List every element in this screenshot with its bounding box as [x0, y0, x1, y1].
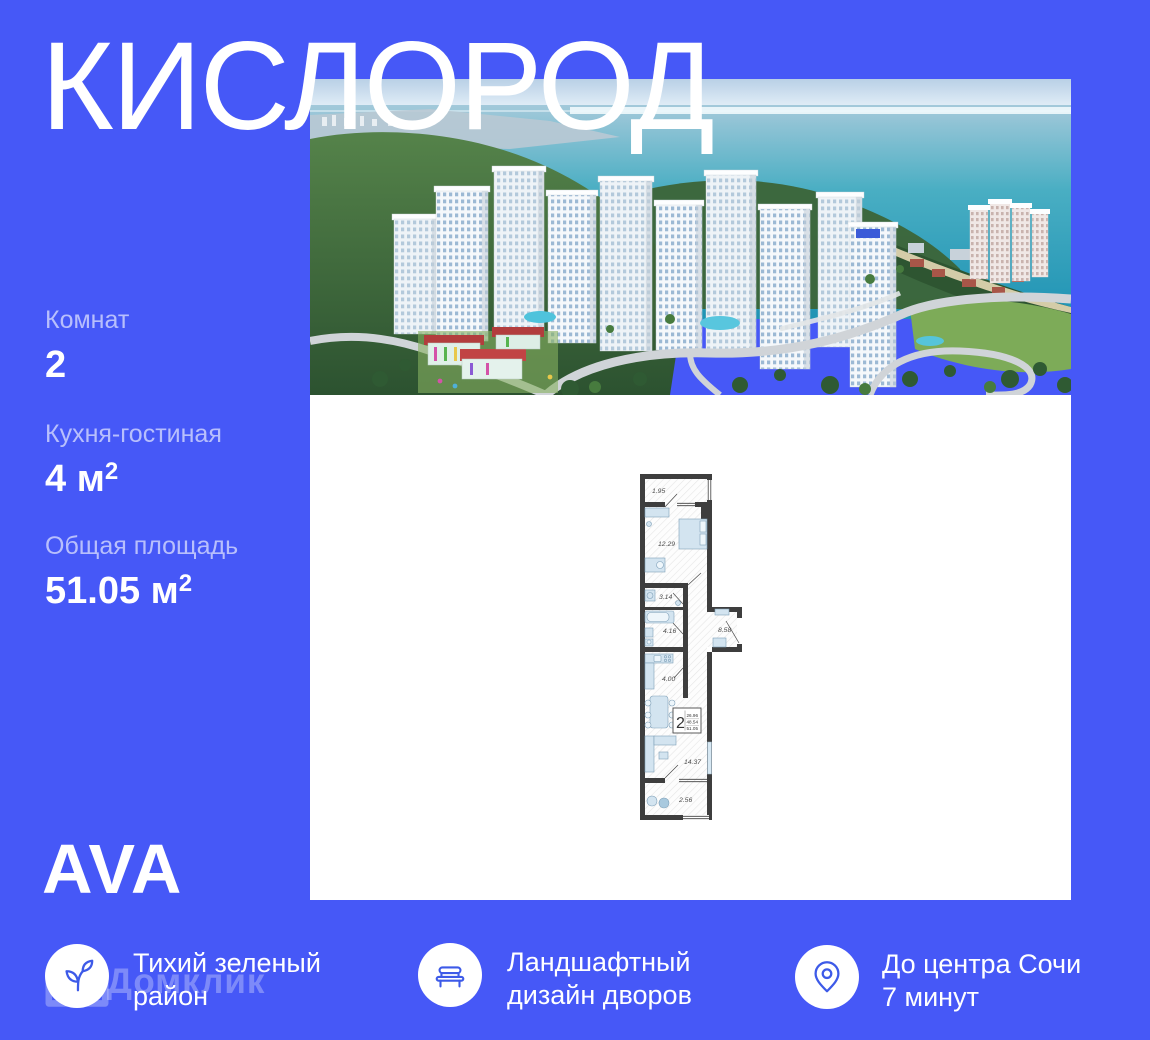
- feature-circle-green-area: [45, 944, 109, 1008]
- stat-kitchen-value: 4 м2: [45, 458, 222, 501]
- stat-kitchen-label: Кухня-гостиная: [45, 420, 222, 449]
- stat-total-area-number: 51.05 м: [45, 570, 179, 612]
- feature-circle-distance: [795, 945, 859, 1009]
- feature-distance-line1: До центра Сочи: [882, 948, 1081, 981]
- stat-kitchen: Кухня-гостиная 4 м2: [45, 420, 222, 501]
- stat-rooms-label: Комнат: [45, 306, 129, 335]
- stat-kitchen-sup: 2: [105, 458, 118, 485]
- room-label-living-room: 14.37: [684, 759, 701, 766]
- listing-card: КИСЛОРОД Комнат 2 Кухня-гостиная 4 м2 Об…: [0, 0, 1150, 1040]
- stat-total-area: Общая площадь 51.05 м2: [45, 532, 238, 613]
- floorplan: 2 26.96 48.54 51.05 1.95 12.29 3.14 4.16…: [635, 472, 747, 824]
- stat-total-area-value: 51.05 м2: [45, 570, 238, 613]
- stat-rooms-number: 2: [45, 344, 66, 386]
- floorplan-panel: 2 26.96 48.54 51.05 1.95 12.29 3.14 4.16…: [310, 395, 1071, 900]
- ava-tower-sign: [856, 229, 880, 238]
- feature-circle-landscape: [418, 943, 482, 1007]
- room-label-hallway: 8.58: [718, 627, 731, 634]
- plan-stamp: 2 26.96 48.54 51.05: [673, 708, 701, 733]
- stat-rooms: Комнат 2: [45, 306, 129, 387]
- stat-rooms-value: 2: [45, 344, 129, 387]
- stat-kitchen-number: 4 м: [45, 458, 105, 500]
- stat-total-area-sup: 2: [179, 570, 192, 597]
- page-title: КИСЛОРОД: [41, 18, 713, 156]
- feature-landscape-line2: дизайн дворов: [507, 979, 692, 1012]
- feature-landscape: Ландшафтный дизайн дворов: [507, 946, 692, 1012]
- feature-landscape-line1: Ландшафтный: [507, 946, 692, 979]
- room-label-kitchen: 4.00: [662, 676, 675, 683]
- room-label-bathroom: 4.16: [663, 628, 676, 635]
- kindergarten: [418, 327, 558, 393]
- room-label-bathroom-small: 3.14: [659, 594, 672, 601]
- sprout-icon: [58, 957, 96, 995]
- room-label-balcony-top: 1.95: [652, 488, 665, 495]
- stamp-line2: 48.54: [687, 720, 699, 725]
- feature-distance: До центра Сочи 7 минут: [882, 948, 1081, 1014]
- stamp-rooms: 2: [676, 715, 685, 732]
- stamp-line3: 51.05: [687, 726, 699, 731]
- room-label-bedroom: 12.29: [658, 541, 675, 548]
- stat-total-area-label: Общая площадь: [45, 532, 238, 561]
- feature-green-area-line1: Тихий зеленый: [133, 947, 321, 980]
- map-pin-icon: [808, 958, 846, 996]
- room-label-balcony-bottom: 2.56: [678, 797, 692, 804]
- stamp-line1: 26.96: [687, 713, 699, 718]
- developer-logo: AVA: [42, 834, 182, 904]
- feature-green-area: Тихий зеленый район: [133, 947, 321, 1013]
- feature-green-area-line2: район: [133, 980, 321, 1013]
- bench-icon: [431, 956, 469, 994]
- feature-distance-line2: 7 минут: [882, 981, 1081, 1014]
